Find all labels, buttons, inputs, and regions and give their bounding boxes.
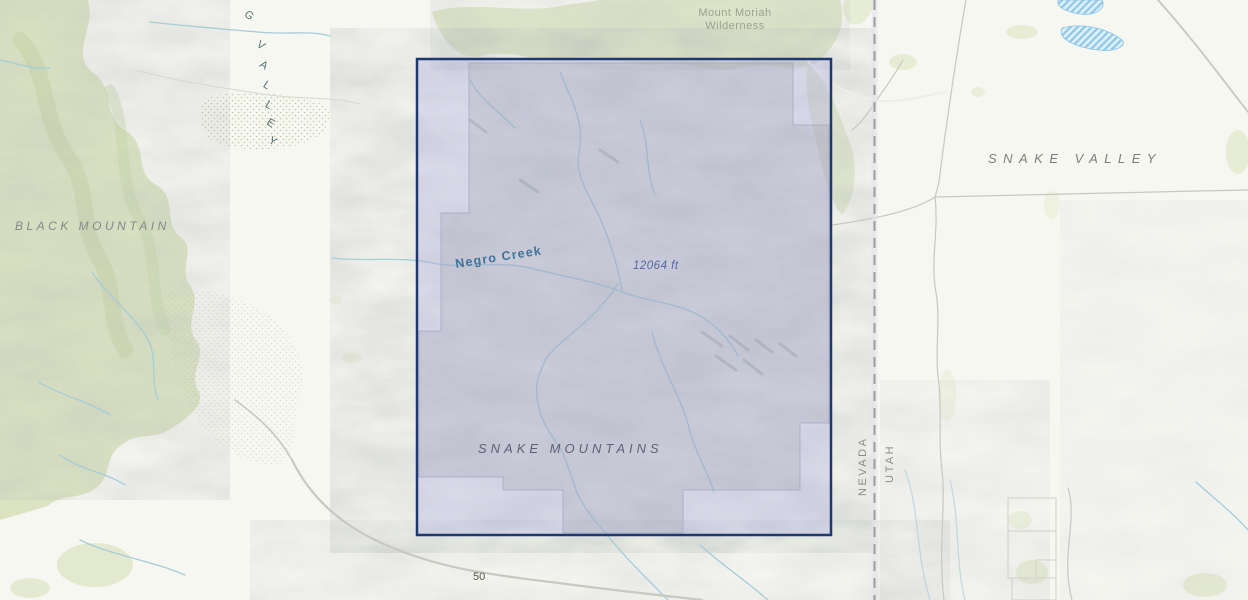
snake-mountains-label: SNAKE MOUNTAINS [478, 441, 663, 456]
spot-elevation-label: 12064 ft [633, 260, 679, 272]
vegetation-patch [57, 543, 133, 587]
map-selection-extent[interactable] [417, 59, 831, 535]
utah-state-label: UTAH [884, 444, 896, 483]
map-canvas[interactable]: Mount Moriah Wilderness SNAKE VALLEY BLA… [0, 0, 1248, 600]
vegetation-patch [1044, 191, 1060, 219]
vegetation-patch [889, 54, 917, 70]
topo-map-viewport[interactable]: Mount Moriah Wilderness SNAKE VALLEY BLA… [0, 0, 1248, 600]
vegetation-patch [10, 578, 50, 598]
vegetation-patch [971, 87, 985, 97]
mount-moriah-wilderness-label: Mount Moriah [698, 7, 771, 19]
mount-moriah-wilderness-label: Wilderness [705, 20, 764, 32]
nevada-state-label: NEVADA [857, 437, 869, 496]
highway-50-label: 50 [473, 571, 485, 583]
hillshade-texture [0, 0, 230, 500]
snake-valley-label: SNAKE VALLEY [988, 151, 1162, 166]
vegetation-patch [1006, 25, 1038, 39]
hillshade-texture [1060, 200, 1248, 600]
selection-overlay [417, 59, 831, 535]
black-mountain-label: BLACK MOUNTAIN [15, 219, 170, 233]
